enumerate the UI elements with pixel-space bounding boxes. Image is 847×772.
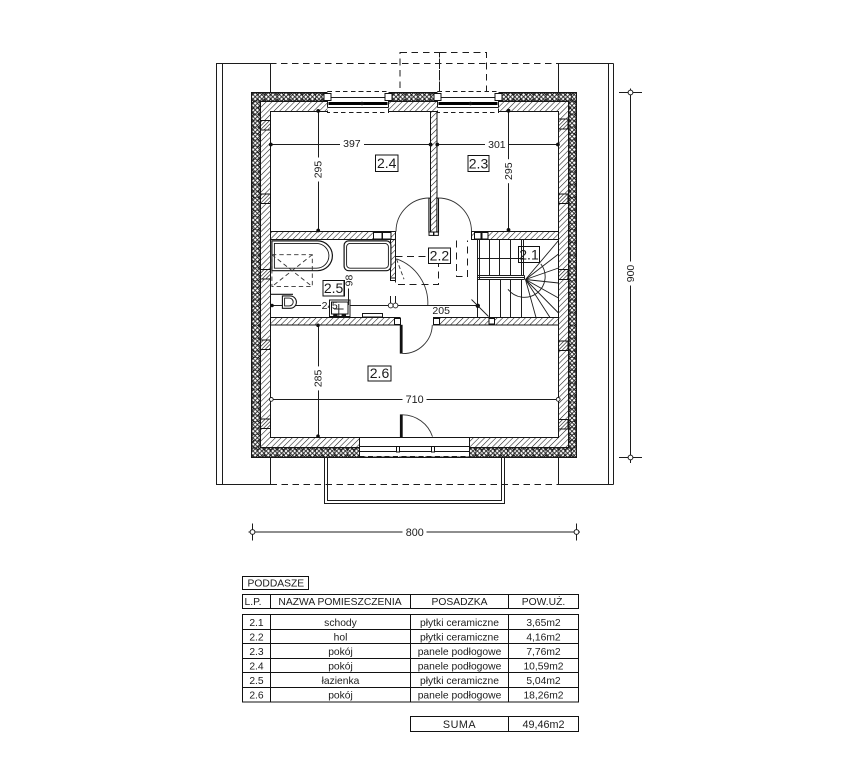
svg-text:98: 98 <box>344 275 356 287</box>
svg-text:panele podłogowe: panele podłogowe <box>418 662 502 673</box>
svg-text:pokój: pokój <box>328 662 353 673</box>
svg-text:4,16m2: 4,16m2 <box>526 632 561 643</box>
svg-text:PODDASZE: PODDASZE <box>248 579 305 590</box>
svg-text:2.3: 2.3 <box>249 647 264 658</box>
svg-text:hol: hol <box>334 632 348 643</box>
svg-text:2.2: 2.2 <box>430 247 450 263</box>
svg-text:5,04m2: 5,04m2 <box>526 676 561 687</box>
svg-text:pokój: pokój <box>328 691 353 702</box>
svg-text:2.3: 2.3 <box>469 155 489 171</box>
svg-text:900: 900 <box>625 265 637 283</box>
svg-text:205: 205 <box>432 305 450 317</box>
svg-text:285: 285 <box>313 369 325 387</box>
svg-text:295: 295 <box>503 162 515 180</box>
svg-text:2.6: 2.6 <box>370 365 390 381</box>
svg-text:panele podłogowe: panele podłogowe <box>418 647 502 658</box>
svg-text:18,26m2: 18,26m2 <box>523 691 563 702</box>
svg-text:397: 397 <box>343 138 361 150</box>
svg-text:L.P.: L.P. <box>245 597 262 608</box>
svg-text:295: 295 <box>313 161 325 179</box>
svg-text:NAZWA POMIESZCZENIA: NAZWA POMIESZCZENIA <box>278 597 401 608</box>
svg-text:2.5: 2.5 <box>324 280 344 296</box>
svg-text:7,76m2: 7,76m2 <box>526 647 561 658</box>
svg-text:schody: schody <box>324 618 357 629</box>
svg-text:płytki ceramiczne: płytki ceramiczne <box>420 618 499 629</box>
svg-text:POSADZKA: POSADZKA <box>431 597 487 608</box>
svg-text:49,46m2: 49,46m2 <box>522 719 564 731</box>
svg-text:2.5: 2.5 <box>249 676 264 687</box>
svg-text:2.1: 2.1 <box>519 246 539 262</box>
svg-text:2.6: 2.6 <box>249 691 264 702</box>
svg-text:2.4: 2.4 <box>377 155 397 171</box>
svg-text:2.1: 2.1 <box>249 618 264 629</box>
svg-text:łazienka: łazienka <box>322 676 360 687</box>
svg-text:SUMA: SUMA <box>443 719 476 731</box>
svg-text:płytki ceramiczne: płytki ceramiczne <box>420 632 499 643</box>
svg-text:301: 301 <box>488 139 506 151</box>
svg-text:POW.UŻ.: POW.UŻ. <box>522 595 565 608</box>
svg-text:2.2: 2.2 <box>249 632 264 643</box>
svg-text:2.4: 2.4 <box>249 662 264 673</box>
svg-text:10,59m2: 10,59m2 <box>523 662 563 673</box>
svg-text:800: 800 <box>406 527 424 539</box>
svg-text:pokój: pokój <box>328 647 353 658</box>
svg-text:3,65m2: 3,65m2 <box>526 618 561 629</box>
svg-text:5: 5 <box>332 300 338 312</box>
svg-text:710: 710 <box>406 394 424 406</box>
svg-text:panele podłogowe: panele podłogowe <box>418 691 502 702</box>
svg-text:płytki ceramiczne: płytki ceramiczne <box>420 676 499 687</box>
